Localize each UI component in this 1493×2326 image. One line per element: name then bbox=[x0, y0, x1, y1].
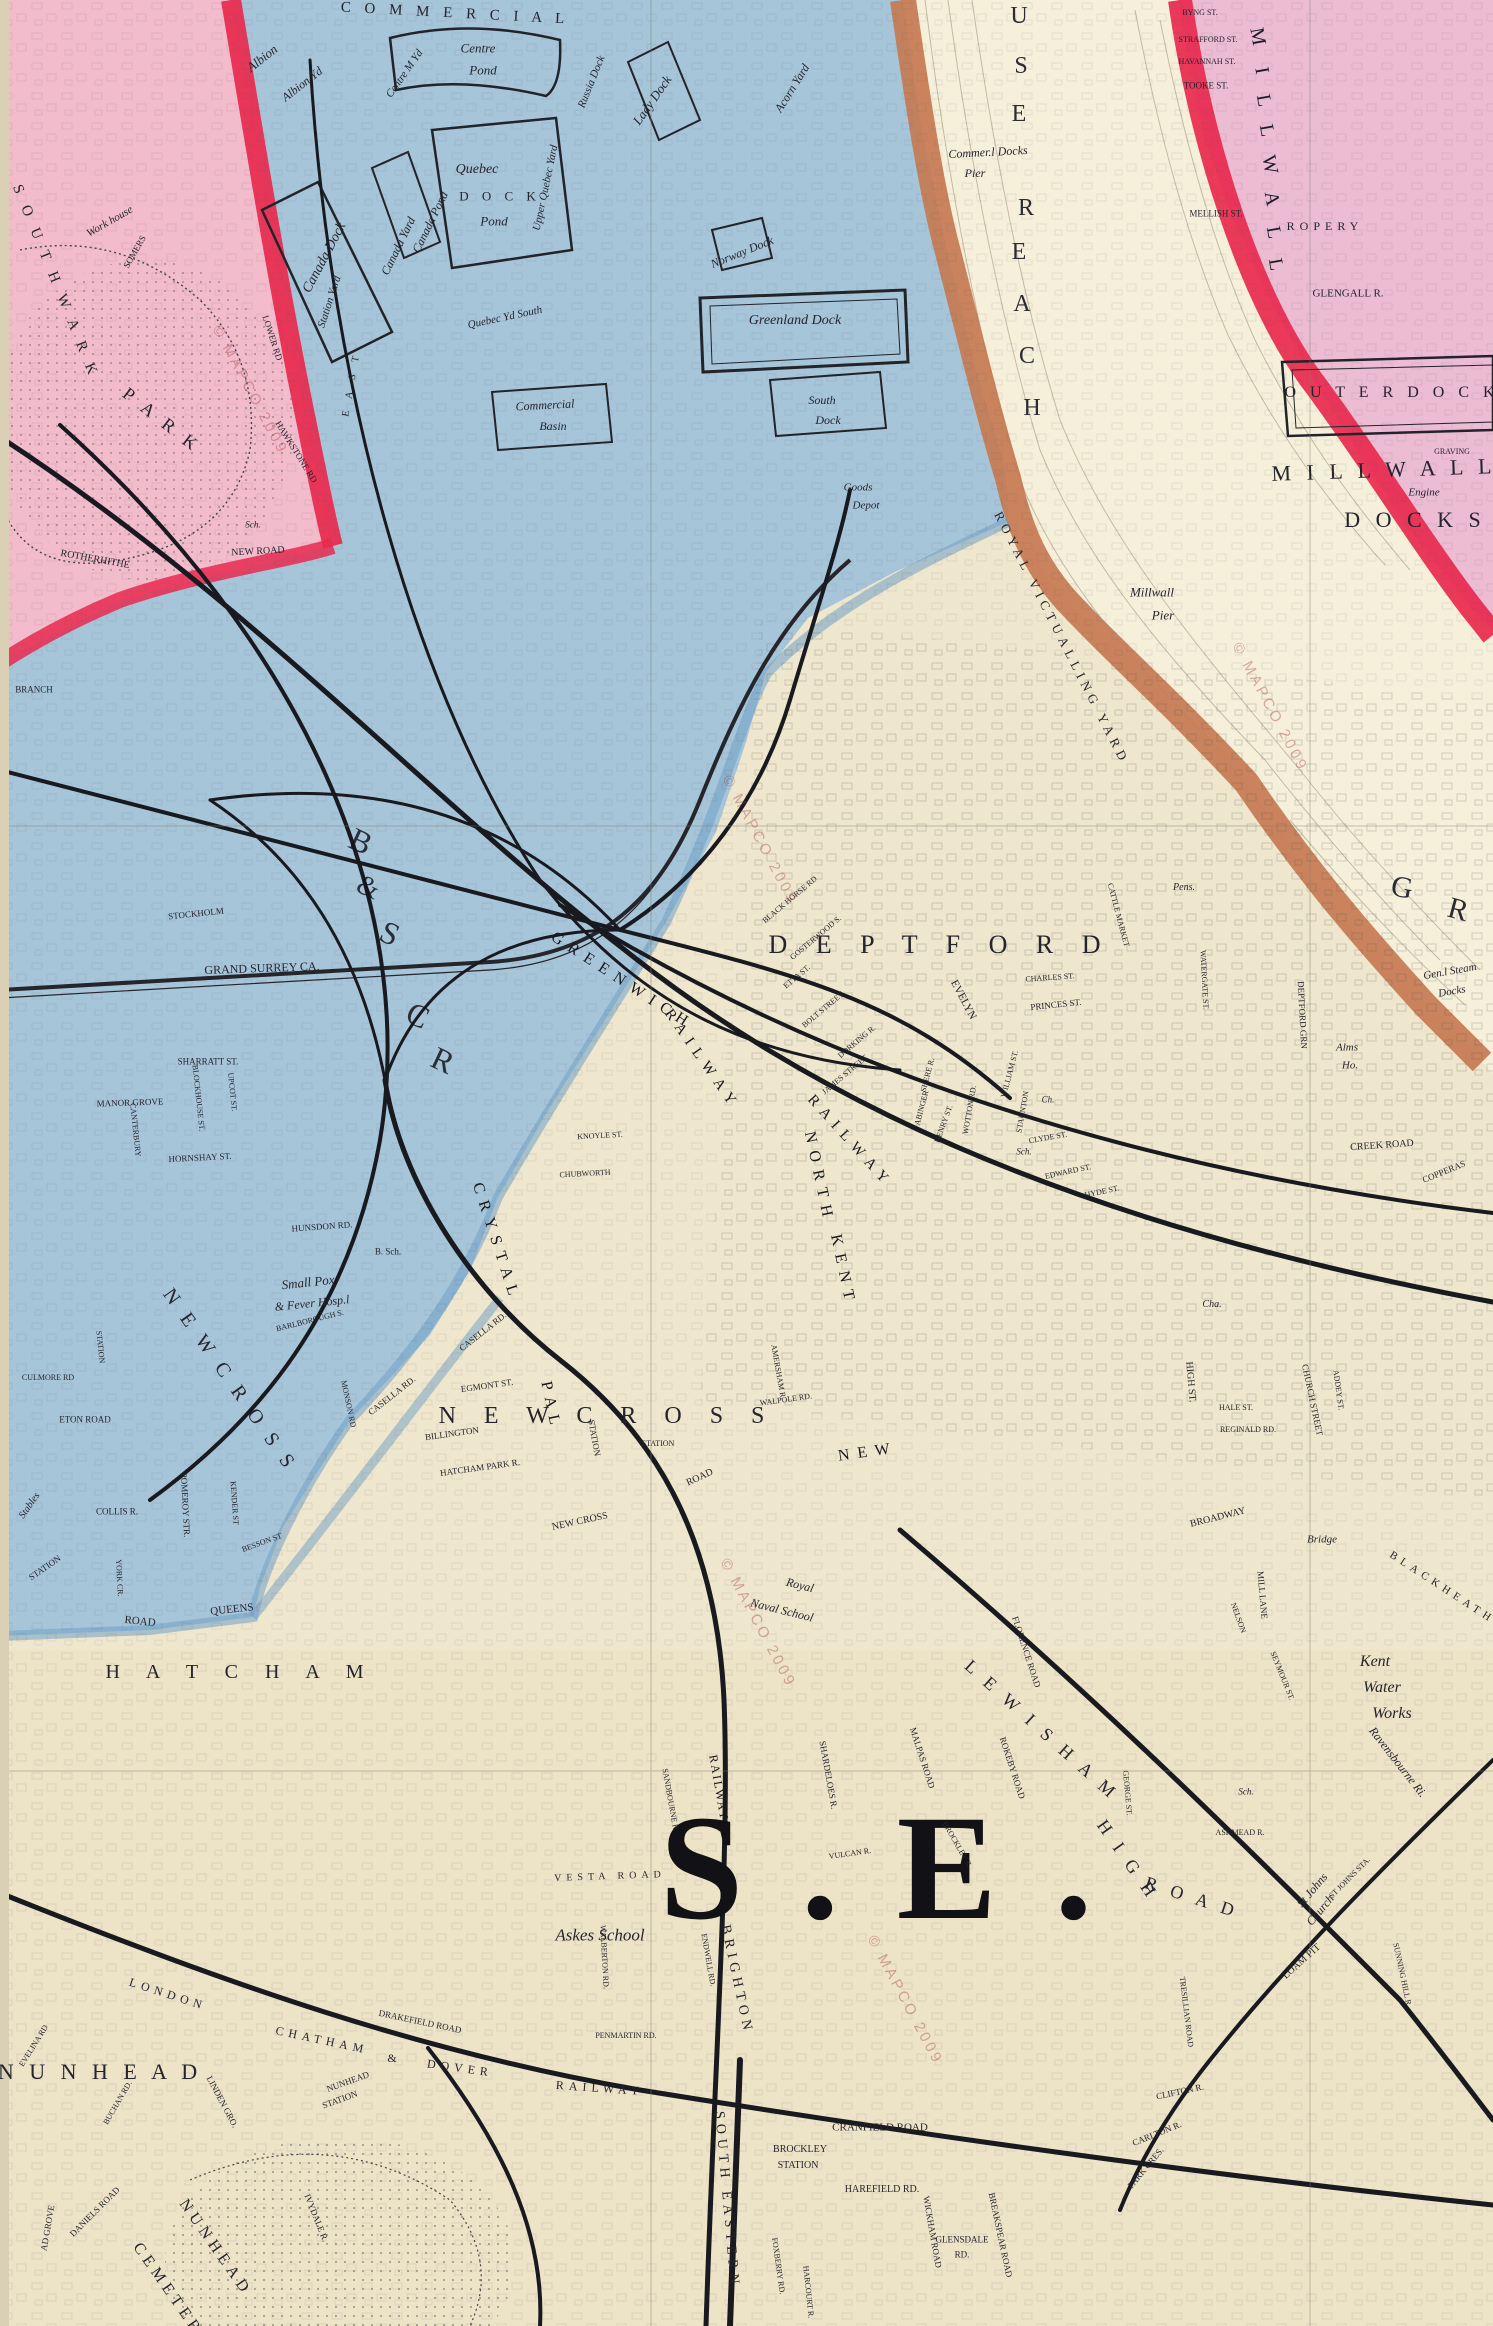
map-label-new-cross: NEW CROSS bbox=[551, 1511, 609, 1533]
map-label-eton-road: ETON ROAD bbox=[59, 1416, 111, 1425]
map-label-station: STATION bbox=[321, 2089, 359, 2110]
map-label-grand-surrey-ca: GRAND SURREY CA. bbox=[204, 960, 320, 976]
map-label-st-johns-sta: ST JOHNS STA. bbox=[1328, 1856, 1372, 1900]
map-label-buchan-rd: BUCHAN RD. bbox=[102, 2080, 133, 2126]
map-label-royal: Royal bbox=[785, 1576, 815, 1594]
map-label-royal-victualling-yard: ROYAL VICTUALLING YARD bbox=[992, 509, 1132, 766]
map-label-ashmead-r: ASHMEAD R. bbox=[1216, 1829, 1265, 1837]
map-label-walpole-rd: WALPOLE RD. bbox=[759, 1392, 812, 1407]
map-label-abinger: ABINGER bbox=[914, 1090, 931, 1126]
map-label-malpas-road: MALPAS ROAD bbox=[908, 1726, 936, 1789]
map-label-w: W bbox=[1258, 153, 1281, 178]
map-label-addey-st: ADDEY ST. bbox=[1331, 1369, 1345, 1410]
map-label-sch: Sch. bbox=[1016, 1148, 1031, 1157]
map-label-station: STATION bbox=[642, 1440, 675, 1448]
map-label-s: S bbox=[1014, 54, 1027, 78]
map-label-n-u-n-h-e-a-d: N U N H E A D bbox=[0, 2061, 202, 2083]
map-label-stables: Stables bbox=[18, 1491, 43, 1520]
map-label-s-e: S.E. bbox=[660, 1793, 1150, 1943]
map-label-havannah-st: HAVANNAH ST. bbox=[1179, 58, 1236, 66]
map-label-r: R bbox=[1444, 893, 1471, 927]
map-label-egmont-st: EGMONT ST. bbox=[460, 1378, 513, 1394]
map-label-m: M bbox=[1246, 26, 1269, 50]
map-label-centre: Centre bbox=[461, 42, 496, 55]
map-label-goods: Goods bbox=[844, 483, 873, 494]
map-label-c-r-y-s-t-a-l: C R Y S T A L bbox=[469, 1181, 521, 1299]
map-label-bridge: Bridge bbox=[1307, 1535, 1337, 1546]
map-label-hyde-st: HYDE ST. bbox=[1084, 1184, 1120, 1199]
map-label-ivydale-r: IVYDALE R. bbox=[302, 2193, 329, 2243]
map-label-sunning-hill-r: SUNNING HILL R. bbox=[1391, 1942, 1412, 2008]
map-label-branch: BRANCH bbox=[15, 686, 53, 695]
map-label-lady-dock: Lady Dock bbox=[630, 73, 673, 127]
map-label-charles-st: CHARLES ST. bbox=[1025, 972, 1075, 983]
map-label-centre-m-yd: Centre M Yd bbox=[384, 48, 425, 100]
map-label-cha: Cha. bbox=[1202, 1300, 1221, 1310]
map-label-rotherhithe: ROTHERHITHE bbox=[60, 549, 131, 571]
map-label-russia-dock: Russia Dock bbox=[577, 54, 608, 109]
map-label-l: L bbox=[1253, 93, 1275, 111]
map-label-harcourt-r: HARCOURT R. bbox=[801, 2265, 814, 2318]
map-label-basin: Basin bbox=[539, 420, 566, 432]
map-label-monson-rd: MONSON RD bbox=[339, 1380, 357, 1428]
map-label-greenland-dock: Greenland Dock bbox=[749, 314, 841, 328]
map-label-millwall: Millwall bbox=[1130, 586, 1174, 599]
map-label-blackheath: BLACKHEATH bbox=[1387, 1550, 1493, 1626]
map-label-s-o-u-t-h-w-a-r-k: S O U T H W A R K bbox=[9, 183, 101, 382]
map-label-drakefield-road: DRAKEFIELD ROAD bbox=[378, 2009, 462, 2035]
map-label-new-road: NEW ROAD bbox=[231, 546, 285, 559]
map-label-r: R bbox=[1018, 196, 1034, 220]
map-label-b: B bbox=[345, 822, 378, 860]
map-label-vesta-road: VESTA ROAD bbox=[554, 1870, 666, 1884]
map-label-layer: C O M M E R C I A LAlbionAlbion YdCentre… bbox=[0, 0, 1493, 2326]
map-label-shere-r: SHERE R. bbox=[920, 1057, 937, 1093]
map-label-gen-l-steam: Gen.l Steam bbox=[1423, 962, 1478, 982]
map-label-mapco-2009: © MAPCO 2009 bbox=[720, 773, 801, 907]
map-label-london: LONDON bbox=[128, 1976, 208, 2012]
map-label-mellish-st: MELLISH ST. bbox=[1189, 210, 1242, 219]
map-label-station-yard: Station Yard bbox=[316, 275, 343, 330]
map-label-knoyle-st: KNOYLE ST. bbox=[577, 1131, 623, 1141]
map-label-deptford-grn: DEPTFORD GRN bbox=[1296, 981, 1309, 1049]
map-label-linden-gro: LINDEN GRO. bbox=[205, 2075, 240, 2130]
map-label-quebec-yd-south: Quebec Yd South bbox=[467, 305, 543, 332]
map-label-park-cres: PARK CRES. bbox=[1126, 2146, 1165, 2190]
map-label-york-cr: YORK CR. bbox=[114, 1559, 124, 1597]
map-label-high-st: HIGH ST. bbox=[1183, 1361, 1197, 1403]
map-label-brockley: BROCKLEY bbox=[773, 2145, 827, 2155]
map-label-nunhead: NUNHEAD bbox=[176, 2197, 255, 2300]
map-label-l: L bbox=[1265, 257, 1287, 275]
map-label-strafford-st: STRAFFORD ST. bbox=[1179, 36, 1238, 44]
map-label-work-house: Work house bbox=[85, 204, 135, 239]
map-label-evelyn: EVELYN bbox=[948, 978, 978, 1021]
map-label-dover: DOVER bbox=[426, 2057, 493, 2078]
map-label-seymour-st: SEYMOUR ST. bbox=[1269, 1650, 1296, 1701]
map-label-a: A bbox=[1261, 190, 1284, 211]
map-label-railway: RAILWAY bbox=[556, 2079, 645, 2097]
map-label-glengall-r: GLENGALL R. bbox=[1312, 289, 1383, 300]
map-label-billington: BILLINGTON bbox=[424, 1426, 479, 1442]
map-label-pier: Pier bbox=[1152, 609, 1174, 622]
map-label-creek-road: CREEK ROAD bbox=[1350, 1139, 1414, 1153]
map-label-r-o-a-d: R O A D bbox=[1143, 1873, 1241, 1920]
map-label-culmore-rd: CULMORE RD bbox=[22, 1374, 74, 1382]
map-label-reginald-rd: REGINALD RD. bbox=[1220, 1426, 1276, 1434]
map-label-besson-st: BESSON ST bbox=[241, 1532, 283, 1554]
map-label-kent: Kent bbox=[1360, 1654, 1390, 1670]
map-label-canada-dock: Canada Dock bbox=[301, 221, 350, 296]
map-label-william-st: WILLIAM ST. bbox=[1000, 1050, 1020, 1099]
map-label-mill-lane: MILL LANE bbox=[1255, 1571, 1268, 1620]
map-label-mapco-2009: © MAPCO 2009 bbox=[718, 1556, 799, 1690]
map-label-l: L bbox=[1263, 225, 1285, 243]
map-label-e-a-s-t: E A S T bbox=[341, 351, 362, 418]
map-label-c: C bbox=[1019, 344, 1035, 368]
map-label-stockholm: STOCKHOLM bbox=[168, 907, 224, 922]
map-label-dock: Dock bbox=[815, 414, 840, 426]
map-label-m-i-l-l-w-a-l-l: M I L L W A L L bbox=[1271, 455, 1493, 485]
map-label-d-o-c-k-s: D O C K S bbox=[1344, 509, 1486, 531]
map-label-: & bbox=[387, 2052, 396, 2064]
map-label-e: E bbox=[1012, 240, 1027, 264]
map-label-depot: Depot bbox=[853, 501, 880, 512]
map-label-blockhouse-st: BLOCKHOUSE ST. bbox=[191, 1064, 206, 1131]
map-label-engine: Engine bbox=[1408, 488, 1439, 499]
map-label-wickham-road: WICKHAM ROAD bbox=[921, 2195, 942, 2268]
map-label-ravensbourne-ri: Ravensbourne Ri. bbox=[1367, 1725, 1429, 1800]
map-label-carlton-r: CARLTON R. bbox=[1131, 2120, 1183, 2148]
map-label-canterbury: CANTERBURY bbox=[128, 1103, 142, 1157]
map-label-ropery: ROPERY bbox=[1287, 220, 1364, 232]
map-label-albion: Albion bbox=[244, 42, 279, 74]
map-label-ho: Ho. bbox=[1342, 1061, 1358, 1072]
map-label-rd: RD. bbox=[955, 2251, 970, 2260]
map-label-acorn-yard: Acorn Yard bbox=[773, 62, 812, 114]
map-label-r: R bbox=[427, 1041, 460, 1079]
map-label-etta-st: ETTA ST. bbox=[782, 964, 812, 991]
map-label-water: Water bbox=[1363, 1680, 1401, 1696]
map-label-james-street: JAMES STREET bbox=[821, 1054, 870, 1097]
map-label-albion-yd: Albion Yd bbox=[280, 65, 325, 104]
map-label-pier: Pier bbox=[965, 167, 986, 179]
map-label-station: STATION bbox=[27, 1554, 62, 1582]
map-label-tooke-st: TOOKE ST. bbox=[1184, 82, 1229, 91]
map-label-works: Works bbox=[1372, 1706, 1411, 1722]
map-label-pond: Pond bbox=[480, 215, 507, 228]
map-label-kender-st: KENDER ST bbox=[228, 1481, 239, 1525]
map-label-sch: Sch. bbox=[1238, 1788, 1253, 1797]
map-label-harefield-rd: HAREFIELD RD. bbox=[845, 2185, 919, 2195]
map-label-e: E bbox=[1012, 102, 1027, 126]
map-label-church-street: CHURCH STREET bbox=[1300, 1363, 1324, 1436]
map-label-cemetery: CEMETERY bbox=[129, 2240, 214, 2326]
map-label-ad-grove: AD GROVE bbox=[40, 2204, 57, 2251]
map-label-south-eastern: SOUTH EASTERN bbox=[711, 2111, 740, 2290]
map-label-mapco-2009: © MAPCO 2009 bbox=[1230, 640, 1311, 774]
map-label-princes-st: PRINCES ST. bbox=[1030, 998, 1082, 1012]
map-label-o-u-t-e-r-d-o-c-k: O U T E R D O C K bbox=[1284, 385, 1493, 401]
map-label-hornshay-st: HORNSHAY ST. bbox=[168, 1152, 232, 1164]
map-label-c: C bbox=[402, 996, 435, 1034]
map-label-florence-road: FLORENCE ROAD bbox=[1010, 1615, 1042, 1688]
map-label-l: L bbox=[1256, 123, 1278, 141]
map-label-r-a-i-l-w-a-y: R A I L W A Y bbox=[661, 1007, 739, 1109]
map-label-pond: Pond bbox=[469, 64, 496, 77]
map-label-quebec: Quebec bbox=[456, 163, 499, 177]
map-label-casella-rd: CASELLA RD. bbox=[458, 1311, 508, 1353]
map-label-daniels-road: DANIELS ROAD bbox=[68, 2185, 121, 2238]
map-label-cranfield-road: CRANFIELD ROAD bbox=[832, 2123, 928, 2134]
map-label-hunsdon-rd: HUNSDON RD. bbox=[291, 1220, 352, 1233]
map-label-nelson: NELSON bbox=[1229, 1602, 1247, 1634]
map-label-bolt-street: BOLT STREET bbox=[801, 990, 845, 1029]
map-label-g: G bbox=[1389, 871, 1416, 904]
map-label-foxberry-rd: FOXBERRY RD. bbox=[770, 2237, 786, 2295]
map-label-casella-rd: CASELLA RD. bbox=[367, 1375, 417, 1417]
map-label-commer-l-docks: Commer.l Docks bbox=[948, 144, 1028, 160]
map-label-n-e-w: N E W bbox=[837, 1441, 893, 1464]
map-label-clyde-st: CLYDE ST. bbox=[1028, 1131, 1067, 1146]
map-label-small-pox: Small Pox bbox=[281, 1273, 335, 1291]
map-label-wotton-rd: WOTTON RD. bbox=[962, 1085, 978, 1135]
map-label-station: STATION bbox=[778, 2161, 819, 2171]
map-label-watergate-st: WATERGATE ST. bbox=[1198, 950, 1209, 1010]
map-label-mapco-2009: © MAPCO 2009 bbox=[865, 1933, 946, 2067]
map-label-broadway: BROADWAY bbox=[1189, 1506, 1247, 1529]
map-label-byng-st: BYNG ST. bbox=[1182, 9, 1217, 17]
map-label-station: STATION bbox=[94, 1330, 105, 1363]
map-label-staunton: STAUNTON bbox=[1015, 1090, 1030, 1133]
map-label-edward-st: EDWARD ST. bbox=[1044, 1163, 1092, 1181]
map-label-h: H bbox=[1023, 396, 1040, 420]
map-label-south: South bbox=[808, 394, 835, 406]
map-label-copperas: COPPERAS bbox=[1421, 1159, 1467, 1184]
vintage-london-map: C O M M E R C I A LAlbionAlbion YdCentre… bbox=[0, 0, 1493, 2326]
map-label-u: U bbox=[1010, 4, 1027, 28]
map-label-breakspear-road: BREAKSPEAR ROAD bbox=[987, 2192, 1014, 2278]
map-label-somers: SOMERS bbox=[122, 234, 148, 270]
map-label-hale-st: HALE ST. bbox=[1219, 1404, 1253, 1412]
map-label-s: S bbox=[375, 915, 405, 952]
map-label-sharratt-st: SHARRATT ST. bbox=[178, 1058, 239, 1067]
map-label-graving: GRAVING bbox=[1434, 448, 1470, 456]
map-label-docks: Docks bbox=[1438, 984, 1467, 1000]
map-label-queens: QUEENS bbox=[210, 1602, 254, 1617]
map-label-lower-rd: LOWER RD bbox=[260, 314, 283, 361]
map-label-a: A bbox=[1013, 292, 1030, 316]
map-label-l-e-w-i-s-h-a-m: L E W I S H A M bbox=[962, 1656, 1123, 1803]
map-label-loam-pit: LOAM PIT bbox=[1281, 1943, 1323, 1982]
map-label-manor-grove: MANOR GROVE bbox=[96, 1097, 163, 1108]
map-label-commercial: Commercial bbox=[515, 397, 574, 412]
map-label-amersham-r: AMERSHAM R. bbox=[769, 1344, 787, 1400]
map-label-norway-dock: Norway Dock bbox=[709, 234, 775, 270]
map-label-pens: Pens. bbox=[1173, 883, 1195, 893]
map-label-c-o-m-m-e-r-c-i-a-l: C O M M E R C I A L bbox=[340, 1, 569, 28]
map-label-alms: Alms bbox=[1336, 1043, 1358, 1054]
map-label-ch: Ch. bbox=[1042, 1096, 1055, 1105]
map-label-n-e-w-c-r-o-s-s: N E W C R O S S bbox=[439, 1404, 776, 1428]
map-label-dorking-r: DORKING R. bbox=[837, 1024, 878, 1060]
map-label-clifton-r: CLIFTON R. bbox=[1155, 2083, 1204, 2102]
map-label-upcot-st: UPCOT ST. bbox=[226, 1072, 238, 1111]
map-label-sch: Sch. bbox=[245, 521, 260, 530]
map-label-glensdale: GLENSDALE bbox=[936, 2236, 989, 2245]
map-label-pomeroy-str: POMEROY STR. bbox=[179, 1472, 191, 1537]
map-label-: & bbox=[352, 871, 384, 906]
map-label-henry-st: HENRY ST. bbox=[933, 1104, 954, 1144]
map-label-chubworth: CHUBWORTH bbox=[559, 1169, 610, 1180]
map-label-penmartin-rd: PENMARTIN RD. bbox=[595, 2032, 656, 2040]
map-label-tresillian-road: TRESILLIAN ROAD bbox=[1178, 1976, 1195, 2047]
map-label-k-e-n-t: K E N T bbox=[827, 1233, 857, 1303]
map-label-b-sch: B. Sch. bbox=[375, 1248, 401, 1257]
map-label-collis-r: COLLIS R. bbox=[96, 1508, 138, 1517]
map-label-road: ROAD bbox=[124, 1615, 156, 1629]
map-label-p-a-r-k: P A R K bbox=[119, 384, 204, 456]
map-label-n-o-r-t-h: N O R T H bbox=[801, 1130, 835, 1220]
map-label-h-a-t-c-h-a-m: H A T C H A M bbox=[106, 1662, 375, 1682]
map-label-chatham: CHATHAM bbox=[275, 2024, 370, 2055]
map-label-road: ROAD bbox=[685, 1467, 715, 1488]
map-label-hatcham-park-r: HATCHAM PARK R. bbox=[440, 1458, 521, 1478]
map-label-i: I bbox=[1251, 66, 1272, 79]
map-label-d-o-c-k: D O C K bbox=[459, 190, 541, 203]
